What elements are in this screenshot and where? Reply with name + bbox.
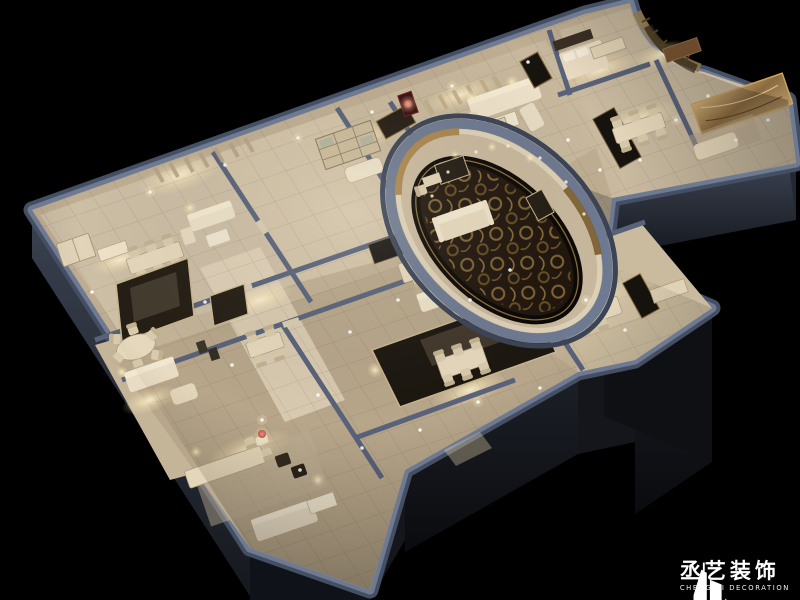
spire — [703, 563, 705, 572]
logo-building-icon — [680, 561, 732, 600]
tower-left — [693, 570, 706, 600]
table-lamp-glow — [116, 366, 128, 378]
floorplan-3d-render — [0, 0, 800, 600]
tower-right — [710, 580, 722, 600]
render-canvas: 丞艺装饰 CHENG YI DECORATION — [0, 0, 800, 600]
company-logo: 丞艺装饰 CHENG YI DECORATION — [680, 561, 790, 592]
